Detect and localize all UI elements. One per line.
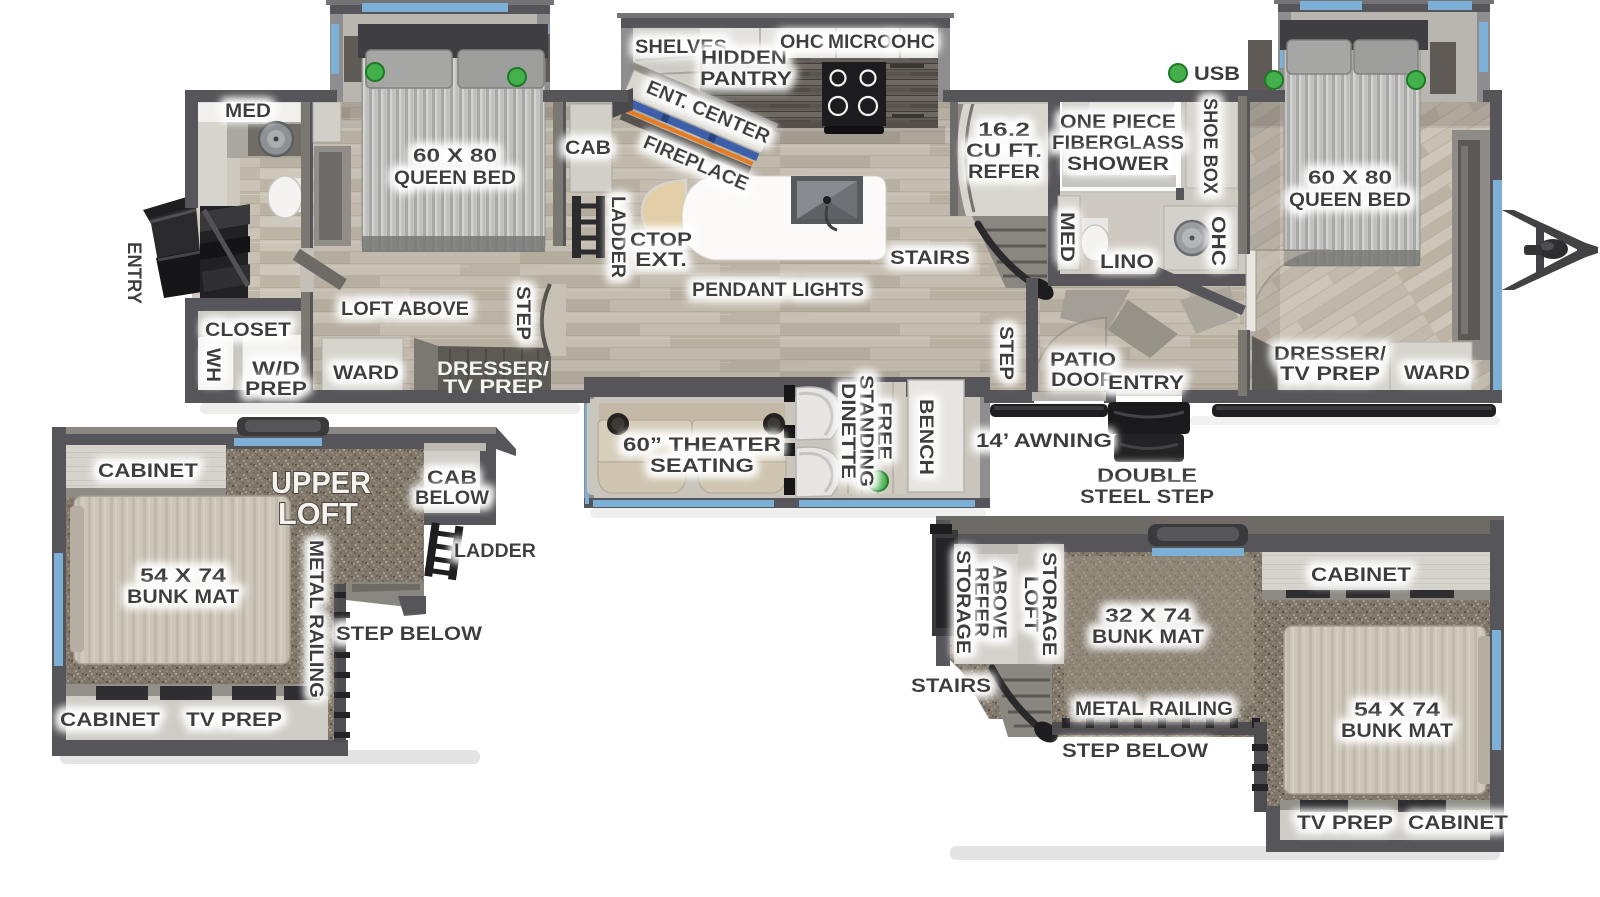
svg-text:USB: USB bbox=[1194, 64, 1240, 85]
svg-text:TV PREP: TV PREP bbox=[443, 377, 543, 398]
svg-text:60 X 80: 60 X 80 bbox=[1308, 168, 1392, 189]
svg-text:QUEEN BED: QUEEN BED bbox=[394, 168, 516, 189]
svg-text:32 X 74: 32 X 74 bbox=[1105, 606, 1192, 627]
svg-text:14’ AWNING: 14’ AWNING bbox=[976, 431, 1112, 452]
svg-text:HIDDEN: HIDDEN bbox=[701, 48, 787, 69]
svg-text:REFER: REFER bbox=[968, 162, 1040, 183]
svg-text:PENDANT LIGHTS: PENDANT LIGHTS bbox=[692, 280, 864, 301]
svg-text:CABINET: CABINET bbox=[98, 461, 198, 482]
svg-text:LOFT: LOFT bbox=[1020, 576, 1041, 632]
svg-text:PATIO: PATIO bbox=[1050, 350, 1116, 371]
svg-text:BENCH: BENCH bbox=[915, 399, 936, 475]
svg-text:STEP: STEP bbox=[995, 326, 1016, 380]
svg-text:CAB: CAB bbox=[565, 138, 611, 159]
svg-text:MED: MED bbox=[1056, 212, 1077, 262]
svg-text:CU FT.: CU FT. bbox=[966, 141, 1042, 162]
svg-text:PREP: PREP bbox=[245, 379, 307, 400]
svg-text:CAB: CAB bbox=[427, 468, 477, 489]
svg-text:WH: WH bbox=[202, 348, 223, 382]
svg-text:CTOP: CTOP bbox=[630, 230, 692, 251]
svg-text:EXT.: EXT. bbox=[635, 250, 687, 271]
svg-text:STAIRS: STAIRS bbox=[890, 248, 970, 269]
svg-text:ENTRY: ENTRY bbox=[1108, 373, 1184, 394]
svg-text:LADDER: LADDER bbox=[454, 541, 536, 562]
svg-text:PANTRY: PANTRY bbox=[700, 69, 792, 90]
svg-text:TV PREP: TV PREP bbox=[186, 710, 282, 731]
svg-text:WARD: WARD bbox=[1404, 363, 1470, 384]
svg-text:DOOR: DOOR bbox=[1051, 370, 1115, 391]
svg-text:LADDER: LADDER bbox=[607, 196, 628, 278]
svg-text:FIBERGLASS: FIBERGLASS bbox=[1052, 133, 1184, 154]
svg-text:MED: MED bbox=[225, 101, 271, 122]
svg-text:CABINET: CABINET bbox=[1311, 565, 1411, 586]
svg-text:DINETTE: DINETTE bbox=[837, 383, 858, 479]
svg-text:TV PREP: TV PREP bbox=[1297, 813, 1393, 834]
svg-text:STAIRS: STAIRS bbox=[911, 676, 991, 697]
svg-text:QUEEN BED: QUEEN BED bbox=[1289, 190, 1411, 211]
svg-text:SHOWER: SHOWER bbox=[1067, 154, 1169, 175]
svg-text:LINO: LINO bbox=[1100, 252, 1154, 273]
svg-text:STORAGE: STORAGE bbox=[952, 550, 973, 654]
svg-text:STORAGE: STORAGE bbox=[1038, 552, 1059, 656]
svg-text:TV PREP: TV PREP bbox=[1280, 364, 1380, 385]
svg-text:LOFT: LOFT bbox=[278, 496, 358, 531]
svg-text:SHOE BOX: SHOE BOX bbox=[1199, 98, 1220, 194]
svg-text:OHC: OHC bbox=[780, 32, 824, 53]
svg-text:BUNK MAT: BUNK MAT bbox=[1092, 627, 1204, 648]
svg-text:OHC: OHC bbox=[891, 32, 935, 53]
svg-text:60 X 80: 60 X 80 bbox=[413, 146, 497, 167]
svg-text:ENTRY: ENTRY bbox=[123, 242, 144, 304]
svg-text:W/D: W/D bbox=[252, 359, 300, 380]
svg-text:LOFT ABOVE: LOFT ABOVE bbox=[341, 299, 469, 320]
svg-text:STEEL STEP: STEEL STEP bbox=[1080, 487, 1214, 508]
svg-text:MICRO: MICRO bbox=[828, 32, 892, 53]
svg-text:STEP: STEP bbox=[512, 286, 533, 340]
svg-text:16.2: 16.2 bbox=[978, 120, 1030, 141]
svg-text:54 X 74: 54 X 74 bbox=[1354, 700, 1441, 721]
svg-text:60” THEATER: 60” THEATER bbox=[623, 435, 781, 456]
svg-text:BUNK MAT: BUNK MAT bbox=[1341, 721, 1453, 742]
svg-text:BUNK MAT: BUNK MAT bbox=[127, 587, 239, 608]
svg-text:WARD: WARD bbox=[333, 363, 399, 384]
svg-text:DRESSER/: DRESSER/ bbox=[1274, 344, 1387, 365]
svg-text:OHC: OHC bbox=[1207, 216, 1228, 266]
svg-text:DOUBLE: DOUBLE bbox=[1097, 466, 1197, 487]
svg-text:STEP BELOW: STEP BELOW bbox=[1062, 741, 1208, 762]
svg-text:METAL RAILING: METAL RAILING bbox=[1075, 699, 1233, 720]
svg-text:UPPER: UPPER bbox=[271, 465, 371, 500]
svg-text:54 X 74: 54 X 74 bbox=[140, 566, 227, 587]
svg-text:ONE PIECE: ONE PIECE bbox=[1060, 112, 1176, 133]
svg-text:CABINET: CABINET bbox=[1408, 813, 1508, 834]
svg-text:SEATING: SEATING bbox=[650, 456, 754, 477]
svg-text:METAL RAILING: METAL RAILING bbox=[305, 540, 326, 698]
svg-text:CABINET: CABINET bbox=[60, 710, 160, 731]
svg-text:CLOSET: CLOSET bbox=[205, 320, 291, 341]
svg-text:BELOW: BELOW bbox=[415, 488, 489, 509]
svg-text:STEP BELOW: STEP BELOW bbox=[336, 624, 482, 645]
